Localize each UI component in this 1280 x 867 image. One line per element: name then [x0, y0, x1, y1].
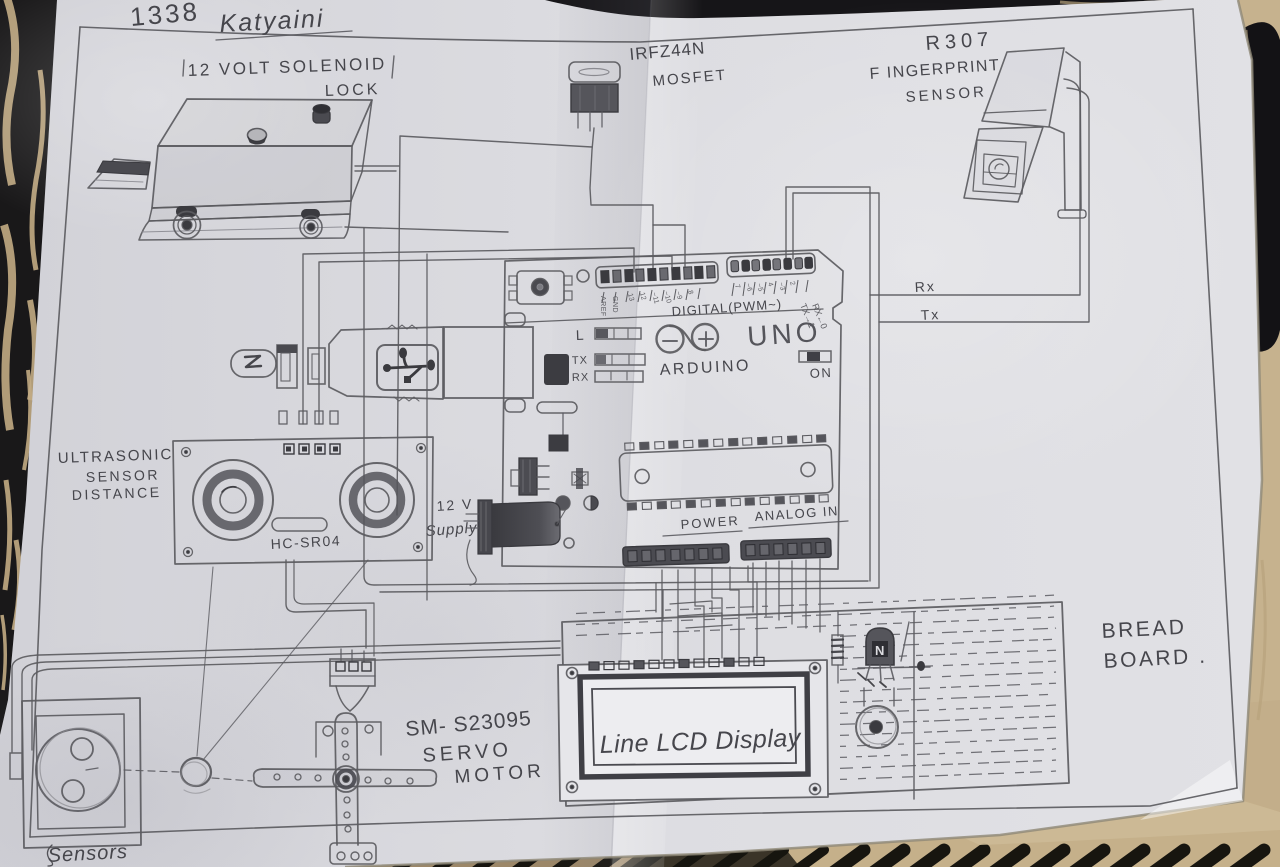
svg-text:BREAD: BREAD [1101, 616, 1187, 643]
svg-text:Rx: Rx [914, 278, 936, 295]
svg-text:AREF: AREF [599, 296, 606, 317]
svg-text:SENSOR: SENSOR [86, 466, 161, 485]
svg-text:Katyaini: Katyaini [219, 5, 325, 38]
svg-text:TX: TX [572, 354, 588, 367]
svg-text:12 V: 12 V [436, 495, 474, 514]
svg-text:UNO: UNO [746, 316, 822, 352]
svg-text:N: N [875, 643, 884, 658]
svg-text:Tx: Tx [920, 306, 940, 323]
svg-text:ON: ON [809, 365, 832, 381]
svg-text:GND: GND [611, 296, 618, 313]
svg-text:DISTANCE: DISTANCE [72, 484, 162, 503]
svg-text:L: L [576, 327, 585, 343]
svg-text:LOCK: LOCK [325, 81, 381, 100]
svg-text:RX: RX [572, 371, 590, 384]
svg-text:Sensors: Sensors [47, 841, 128, 867]
